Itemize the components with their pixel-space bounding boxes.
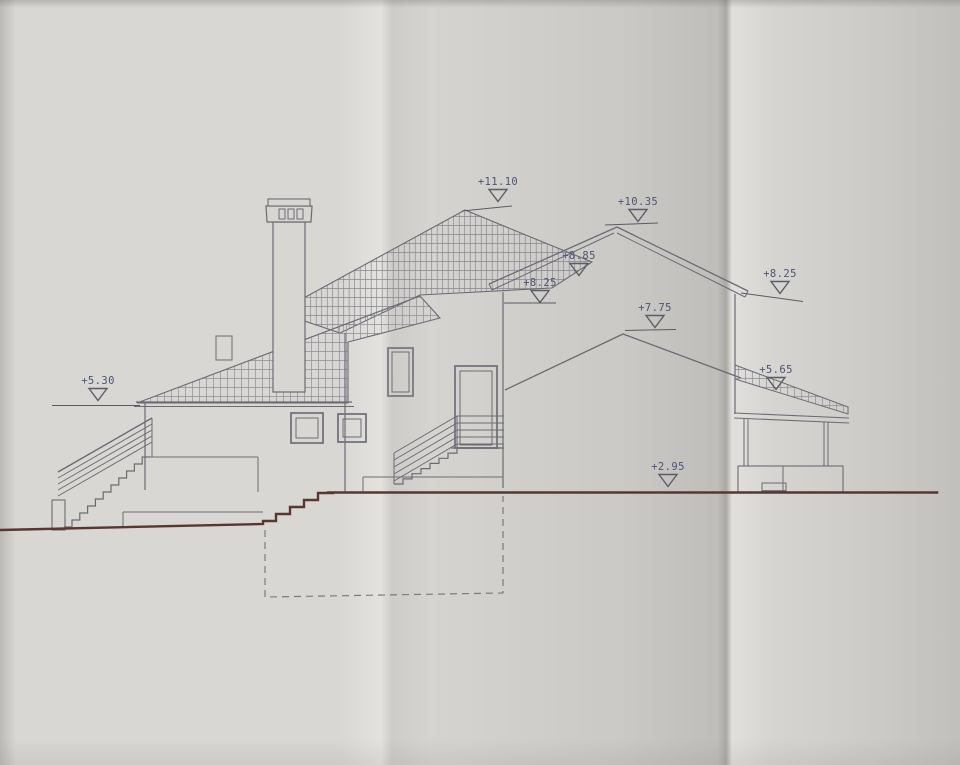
porch [734, 365, 849, 492]
photographed-paper-sheet: +11.10 +10.35 +8.85 +8.25 +7.75 +8.25 +5… [0, 0, 960, 765]
entry-door [451, 366, 501, 448]
chimney [266, 199, 312, 392]
elevation-drawing [0, 0, 960, 765]
left-exterior-staircase [52, 418, 152, 530]
central-staircase [363, 416, 504, 492]
upper-window [388, 348, 413, 396]
middle-roof [505, 334, 741, 390]
foundation-dashed-outline [265, 496, 503, 597]
left-wing-windows [291, 413, 366, 443]
ground-line [0, 493, 937, 531]
